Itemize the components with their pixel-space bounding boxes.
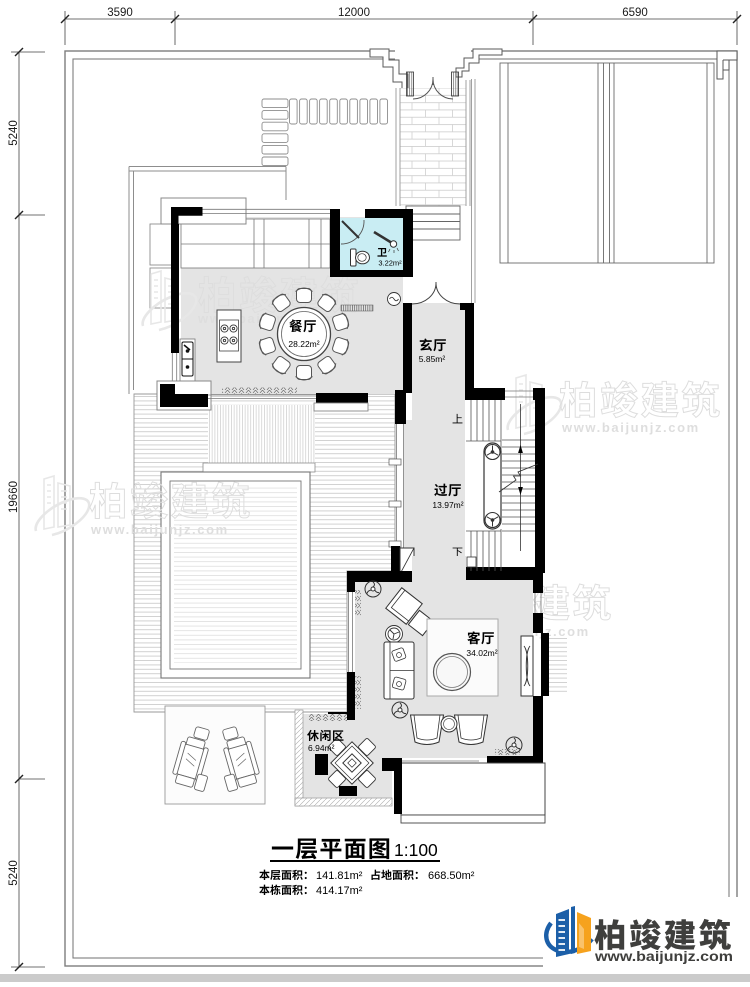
svg-text:5240: 5240: [8, 120, 20, 146]
svg-text:1:100: 1:100: [394, 840, 438, 860]
svg-text:668.50m²: 668.50m²: [428, 870, 475, 882]
svg-text:3590: 3590: [107, 7, 133, 19]
svg-text:19660: 19660: [8, 481, 20, 513]
svg-text:3.22m²: 3.22m²: [378, 259, 402, 268]
svg-text:www.baijunjz.com: www.baijunjz.com: [594, 949, 733, 964]
svg-text:5240: 5240: [8, 860, 20, 886]
svg-text:141.81m²: 141.81m²: [316, 870, 363, 882]
svg-text:5.85m²: 5.85m²: [419, 354, 446, 364]
svg-text:34.02m²: 34.02m²: [466, 648, 497, 658]
svg-text:414.17m²: 414.17m²: [316, 885, 363, 897]
svg-text:www.baijunjz.com: www.baijunjz.com: [90, 522, 229, 537]
svg-text:6590: 6590: [622, 7, 648, 19]
svg-text:13.97m²: 13.97m²: [432, 500, 463, 510]
svg-text:12000: 12000: [338, 7, 370, 19]
svg-text:www.baijunjz.com: www.baijunjz.com: [561, 420, 700, 435]
svg-text:6.94m²: 6.94m²: [308, 743, 335, 753]
svg-text:28.22m²: 28.22m²: [288, 339, 319, 349]
